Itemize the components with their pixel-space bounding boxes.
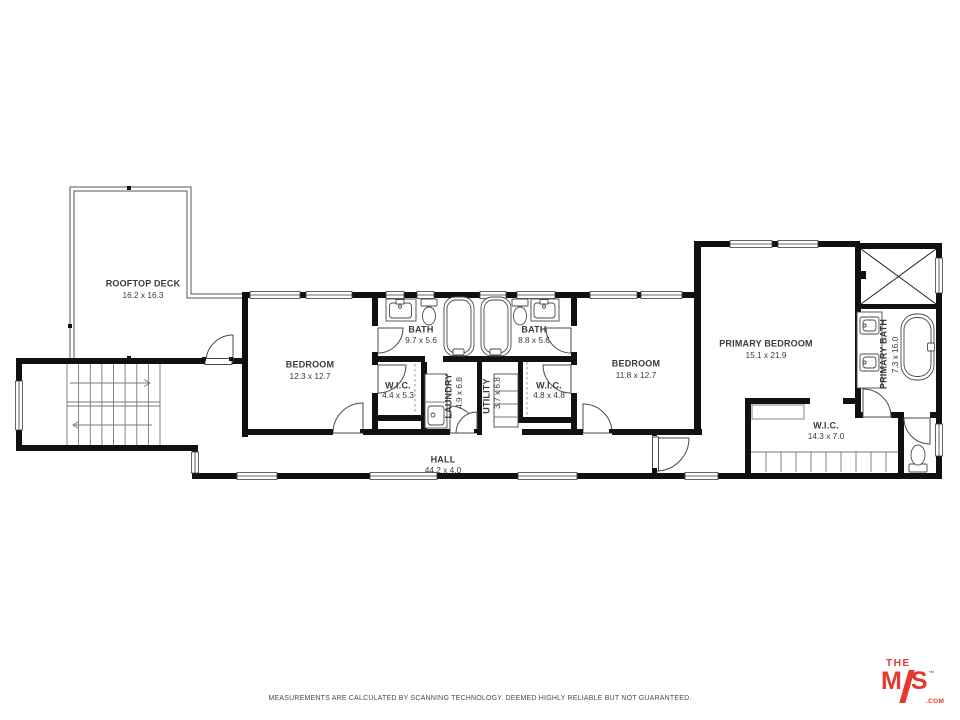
- shower: [861, 249, 936, 304]
- walls: [16, 241, 942, 479]
- deck-door-leaf: [205, 359, 232, 365]
- label-bath1: BATH: [408, 324, 433, 334]
- window: [517, 292, 555, 299]
- window: [386, 292, 404, 299]
- dims-wic2: 4.8 x 4.8: [533, 390, 565, 400]
- themls-logo: THE M S ™ .COM: [881, 659, 945, 707]
- bedroom1-door-arc: [333, 403, 363, 433]
- disclaimer-text: MEASUREMENTS ARE CALCULATED BY SCANNING …: [0, 695, 960, 702]
- logo-com: .COM: [926, 698, 944, 705]
- faucet-icon: [396, 300, 404, 305]
- label-bath2: BATH: [521, 324, 546, 334]
- floor-plan-page: ROOFTOP DECK 16.2 x 16.3 BEDROOM 12.3 x …: [0, 0, 960, 720]
- dims-primary-wic: 14.3 x 7.0: [808, 431, 845, 441]
- hall-door-arc: [656, 438, 689, 471]
- window: [590, 292, 637, 299]
- window: [685, 473, 718, 480]
- toilet-room-door-arc: [904, 418, 930, 444]
- label-rooftop-deck: ROOFTOP DECK: [106, 278, 181, 288]
- window: [518, 473, 577, 480]
- dims-bath1: 9.7 x 5.6: [405, 335, 437, 345]
- window: [730, 241, 772, 248]
- floor-plan: ROOFTOP DECK 16.2 x 16.3 BEDROOM 12.3 x …: [0, 0, 960, 720]
- window: [192, 452, 199, 473]
- bath1-door-arc: [378, 328, 403, 353]
- label-primary-bedroom: PRIMARY BEDROOM: [719, 338, 813, 348]
- dims-laundry: 4.9 x 6.8: [454, 377, 464, 409]
- bath2-fixtures: [481, 297, 559, 356]
- label-primary-bath: PRIMARY BATH: [878, 319, 888, 389]
- logo-m: M: [881, 670, 902, 693]
- hall-door-leaf: [653, 437, 659, 471]
- dims-hall: 44.2 x 4.0: [425, 465, 462, 475]
- toilet-icon: [512, 299, 528, 306]
- dims-rooftop-deck: 16.2 x 16.3: [122, 290, 163, 300]
- bedroom2-door-arc: [583, 404, 612, 433]
- staircase: [67, 364, 160, 445]
- window: [936, 424, 943, 456]
- dims-wic1: 4.4 x 5.3: [382, 390, 414, 400]
- logo-trademark: ™: [929, 671, 935, 677]
- dims-primary-bath: 7.3 x 16.0: [890, 336, 900, 373]
- logo-mls-row: M S ™: [881, 670, 945, 696]
- label-bedroom1: BEDROOM: [286, 359, 334, 369]
- dims-bath2: 8.8 x 5.6: [518, 335, 550, 345]
- window: [778, 241, 818, 248]
- window: [641, 292, 682, 299]
- doors: [202, 328, 930, 473]
- primary-bath-door-arc: [863, 389, 891, 417]
- rooftop-deck-outline: [68, 186, 245, 360]
- window: [417, 292, 434, 299]
- label-utility: UTILITY: [481, 378, 491, 413]
- label-wic1: W.I.C.: [385, 380, 411, 390]
- window: [936, 258, 943, 293]
- window: [237, 473, 277, 480]
- label-bedroom2: BEDROOM: [612, 358, 660, 368]
- window: [16, 381, 23, 430]
- window: [306, 292, 352, 299]
- window: [250, 292, 300, 299]
- dims-bedroom1: 12.3 x 12.7: [289, 371, 330, 381]
- deck-door-arc: [206, 335, 233, 362]
- toilet-icon: [421, 299, 437, 306]
- label-primary-wic: W.I.C.: [813, 420, 839, 430]
- toilet-room-fixtures: [909, 445, 927, 472]
- dims-primary-bedroom: 15.1 x 21.9: [745, 350, 786, 360]
- label-hall: HALL: [431, 454, 456, 464]
- label-laundry: LAUNDRY: [443, 373, 453, 418]
- dims-bedroom2: 11.8 x 12.7: [616, 370, 657, 380]
- dims-utility: 3.7 x 6.8: [492, 377, 502, 409]
- label-wic2: W.I.C.: [536, 380, 562, 390]
- faucet-icon: [540, 300, 548, 305]
